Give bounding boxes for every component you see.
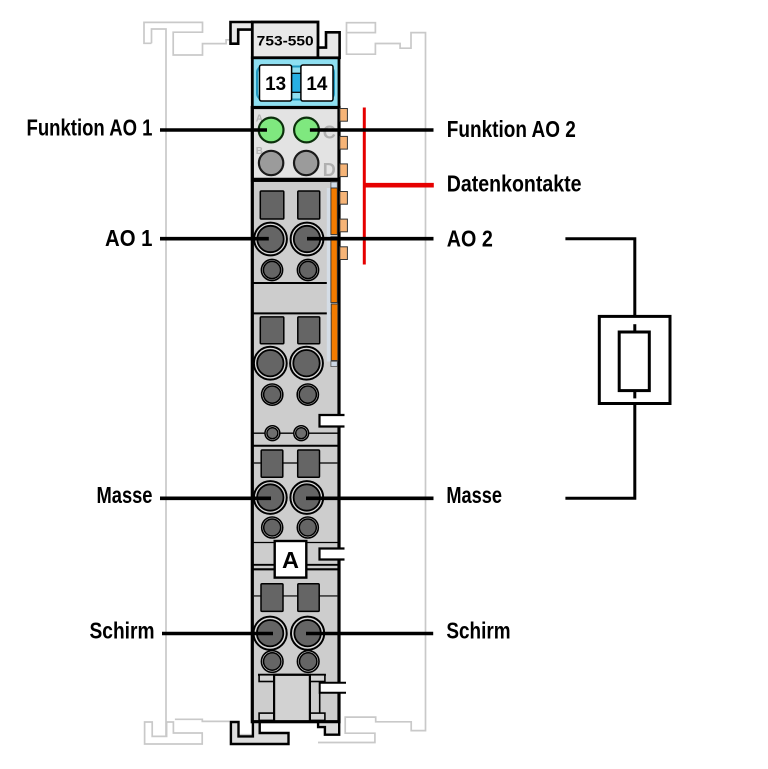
svg-text:D: D xyxy=(323,160,336,180)
svg-text:14: 14 xyxy=(306,73,327,95)
svg-text:Masse: Masse xyxy=(97,482,153,508)
svg-text:Schirm: Schirm xyxy=(90,618,155,644)
svg-text:C: C xyxy=(323,123,336,143)
svg-text:AO 1: AO 1 xyxy=(105,225,153,251)
svg-text:13: 13 xyxy=(265,73,286,95)
svg-text:Schirm: Schirm xyxy=(446,618,510,644)
svg-text:A: A xyxy=(282,547,299,573)
svg-text:Funktion AO 1: Funktion AO 1 xyxy=(27,114,153,140)
svg-text:Datenkontakte: Datenkontakte xyxy=(447,171,582,197)
svg-text:Funktion AO 2: Funktion AO 2 xyxy=(447,116,576,142)
svg-text:753-550: 753-550 xyxy=(257,34,314,50)
svg-text:Masse: Masse xyxy=(446,482,502,508)
svg-text:AO 2: AO 2 xyxy=(447,226,493,252)
